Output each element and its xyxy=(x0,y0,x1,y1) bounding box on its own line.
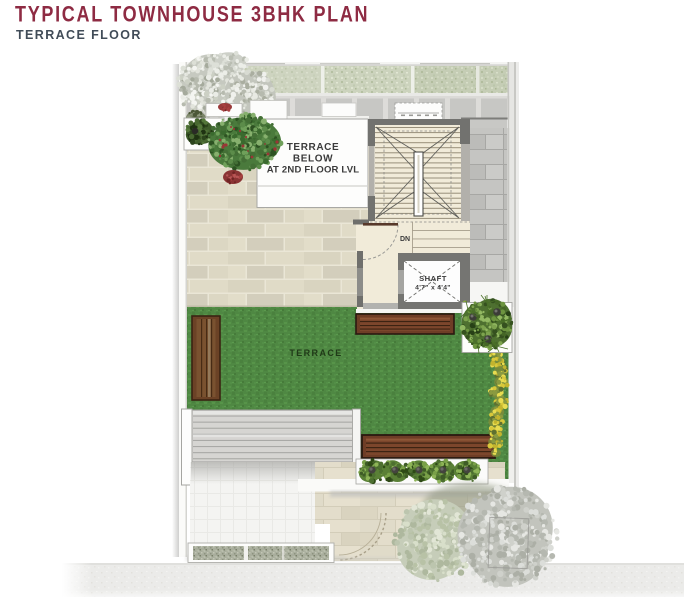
svg-text:4'7" x 4'4": 4'7" x 4'4" xyxy=(415,285,451,292)
svg-text:BELOW: BELOW xyxy=(293,154,333,165)
svg-text:SHAFT: SHAFT xyxy=(419,274,447,283)
svg-text:DN: DN xyxy=(400,236,410,243)
svg-text:AT 2ND FLOOR LVL: AT 2ND FLOOR LVL xyxy=(267,165,360,176)
svg-text:TERRACE: TERRACE xyxy=(289,348,342,358)
svg-text:TERRACE: TERRACE xyxy=(287,142,340,153)
